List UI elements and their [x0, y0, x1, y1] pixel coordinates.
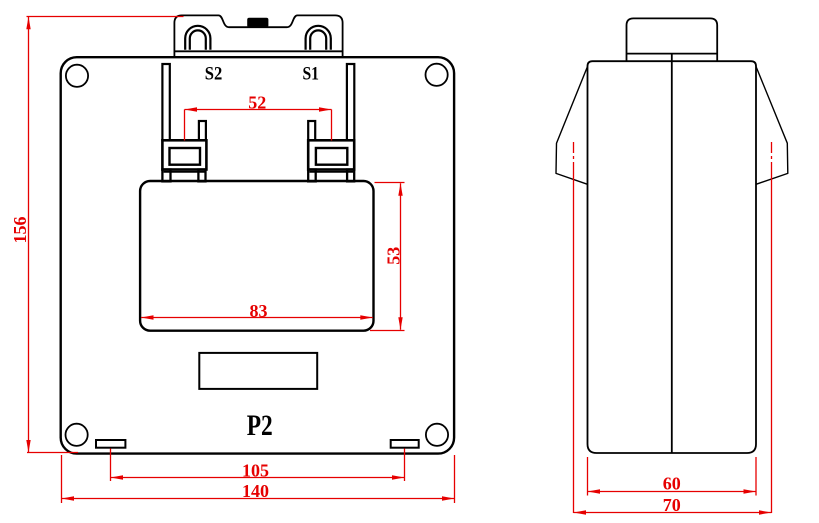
svg-text:83: 83: [250, 301, 268, 321]
svg-text:S2: S2: [205, 63, 223, 84]
svg-text:140: 140: [242, 481, 269, 501]
svg-text:S1: S1: [302, 63, 319, 84]
svg-text:105: 105: [242, 460, 269, 480]
svg-text:60: 60: [663, 474, 681, 494]
svg-text:P2: P2: [247, 409, 273, 442]
svg-text:53: 53: [383, 247, 403, 265]
svg-text:156: 156: [10, 217, 30, 244]
svg-text:52: 52: [248, 93, 266, 113]
svg-text:70: 70: [663, 495, 681, 515]
